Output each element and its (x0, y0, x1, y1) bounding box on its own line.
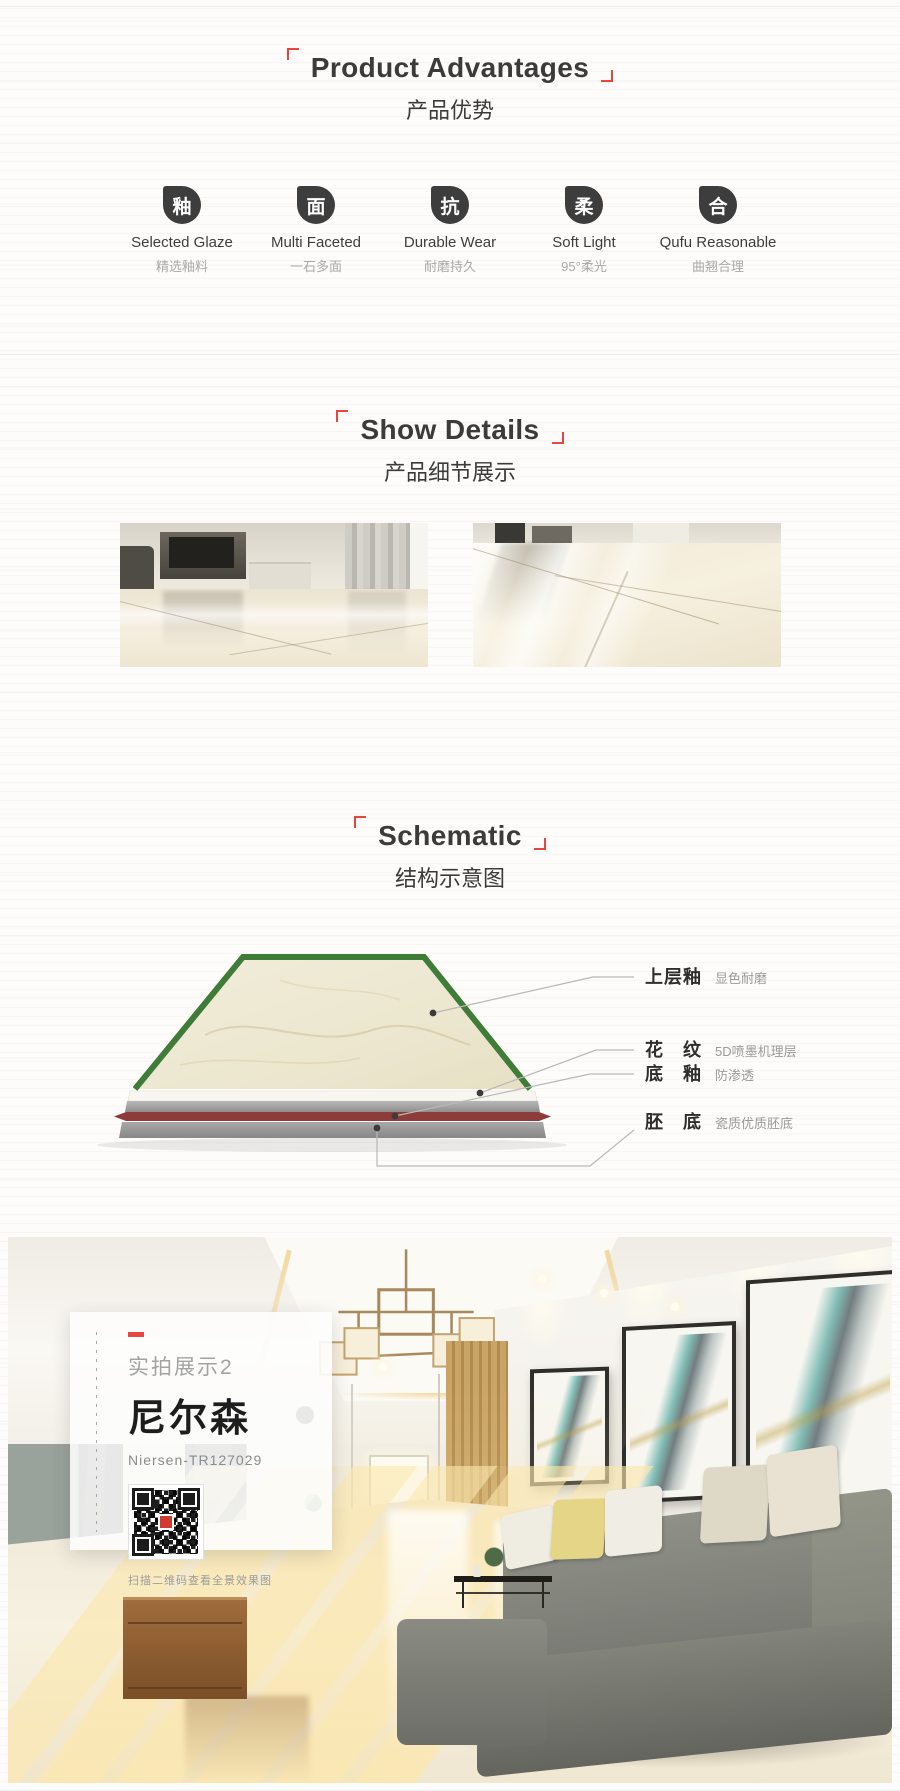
feature-label-zh: 95°柔光 (517, 256, 651, 275)
feature-qufu-reasonable: 合 Qufu Reasonable 曲翘合理 (651, 186, 785, 275)
table-vase (473, 1565, 481, 1577)
photo-window-light (410, 523, 428, 592)
red-layer (114, 1112, 551, 1121)
photo-doorway (495, 523, 526, 545)
layer-desc: 防渗透 (715, 1065, 754, 1084)
ceiling-spotlight (671, 1303, 679, 1311)
sofa-pillow (766, 1444, 841, 1537)
detail-photo-living-room (120, 523, 428, 667)
feature-selected-glaze: 釉 Selected Glaze 精选釉料 (115, 186, 249, 275)
facet-drop-icon: 面 (297, 186, 335, 224)
feature-label-zh: 精选釉料 (115, 256, 249, 275)
layer-name: 胚 底 (645, 1108, 702, 1134)
product-model: Niersen-TR127029 (128, 1452, 318, 1468)
product-info-card: 实拍展示2 尼尔森 Niersen-TR127029 扫描二维码查看全景效果图 (70, 1312, 332, 1550)
wear-drop-icon: 抗 (431, 186, 469, 224)
feature-label-en: Soft Light (517, 234, 651, 251)
flat-drop-icon: 合 (699, 186, 737, 224)
qr-finder-icon (178, 1488, 200, 1510)
feature-durable-wear: 抗 Durable Wear 耐磨持久 (383, 186, 517, 275)
product-advantages-title-en: Product Advantages (311, 52, 589, 84)
layer-label-body: 胚 底 瓷质优质胚底 (645, 1108, 793, 1134)
soft-drop-icon: 柔 (565, 186, 603, 224)
feature-list: 釉 Selected Glaze 精选釉料 面 Multi Faceted 一石… (0, 186, 900, 275)
feature-label-en: Durable Wear (383, 234, 517, 251)
body-layer (119, 1122, 546, 1138)
sofa-pillow (605, 1485, 662, 1557)
qr-caption: 扫描二维码查看全景效果图 (128, 1572, 318, 1588)
wood-cabinet (123, 1597, 247, 1698)
showcase-room-photo: 实拍展示2 尼尔森 Niersen-TR127029 扫描二维码查看全景效果图 (8, 1237, 892, 1783)
schematic-title-zh: 结构示意图 (0, 861, 900, 893)
layer-desc: 瓷质优质胚底 (715, 1113, 793, 1132)
tile-top-surface (135, 957, 530, 1089)
decorative-dotted-line (96, 1332, 97, 1532)
diagram-shadow (97, 1138, 567, 1152)
schematic-title-en: Schematic (378, 820, 522, 852)
photo-cabinet (532, 526, 572, 545)
base-glaze-layer (125, 1101, 540, 1112)
photo-tag: 实拍展示2 (128, 1351, 318, 1381)
sofa-pillow (700, 1465, 771, 1545)
feature-label-en: Qufu Reasonable (651, 234, 785, 251)
top-divider (0, 6, 900, 7)
page: Product Advantages 产品优势 釉 Selected Glaze… (0, 0, 900, 1791)
layer-name: 底 釉 (645, 1060, 702, 1086)
layer-desc: 显色耐磨 (715, 968, 767, 987)
cabinet-floor-reflection (185, 1696, 309, 1783)
table-plant (481, 1545, 507, 1575)
qr-finder-icon (132, 1488, 154, 1510)
photo-tv-screen (169, 537, 234, 567)
feature-label-zh: 耐磨持久 (383, 256, 517, 275)
red-dash-accent (128, 1332, 144, 1337)
feature-label-zh: 一石多面 (249, 256, 383, 275)
photo-sideboard (249, 562, 311, 591)
card-content: 实拍展示2 尼尔森 Niersen-TR127029 扫描二维码查看全景效果图 (128, 1332, 318, 1588)
photo-curtain (345, 523, 410, 592)
layer-label-pattern: 花 纹 5D喷墨机理层 (645, 1036, 797, 1062)
feature-multi-faceted: 面 Multi Faceted 一石多面 (249, 186, 383, 275)
feature-soft-light: 柔 Soft Light 95°柔光 (517, 186, 651, 275)
layer-label-base-glaze: 底 釉 防渗透 (645, 1060, 754, 1086)
glaze-drop-icon: 釉 (163, 186, 201, 224)
qr-finder-icon (132, 1534, 154, 1556)
icon-glyph: 合 (708, 192, 727, 219)
section-divider (0, 354, 900, 355)
section-title-show-details: Show Details 产品细节展示 (0, 414, 900, 487)
sofa-pillow-yellow (549, 1498, 606, 1560)
sofa-pillow (501, 1505, 559, 1570)
icon-glyph: 面 (306, 192, 325, 219)
feature-label-zh: 曲翘合理 (651, 256, 785, 275)
sofa-chaise (397, 1619, 547, 1745)
icon-glyph: 抗 (440, 192, 459, 219)
feature-label-en: Selected Glaze (115, 234, 249, 251)
floor-sheen (120, 602, 428, 628)
detail-photos (120, 523, 781, 667)
pattern-layer (128, 1091, 537, 1101)
layer-label-top-glaze: 上层釉 显色耐磨 (645, 963, 767, 989)
layer-name: 花 纹 (645, 1036, 702, 1062)
coffee-table (454, 1576, 551, 1583)
section-title-schematic: Schematic 结构示意图 (0, 820, 900, 893)
qr-center-logo (158, 1514, 174, 1530)
icon-glyph: 釉 (172, 192, 191, 219)
feature-label-en: Multi Faceted (249, 234, 383, 251)
product-advantages-title-zh: 产品优势 (0, 93, 900, 125)
photo-chair (120, 546, 154, 594)
icon-glyph: 柔 (574, 192, 593, 219)
ceiling-downlight (379, 1363, 387, 1371)
layer-desc: 5D喷墨机理层 (715, 1041, 797, 1060)
photo-far-wall (633, 523, 688, 543)
product-name: 尼尔森 (128, 1387, 318, 1442)
show-details-title-en: Show Details (360, 414, 539, 446)
layer-name: 上层釉 (645, 963, 702, 989)
qr-code (128, 1484, 204, 1560)
show-details-title-zh: 产品细节展示 (0, 455, 900, 487)
detail-photo-floor-reflection (473, 523, 781, 667)
section-title-product-advantages: Product Advantages 产品优势 (0, 52, 900, 125)
